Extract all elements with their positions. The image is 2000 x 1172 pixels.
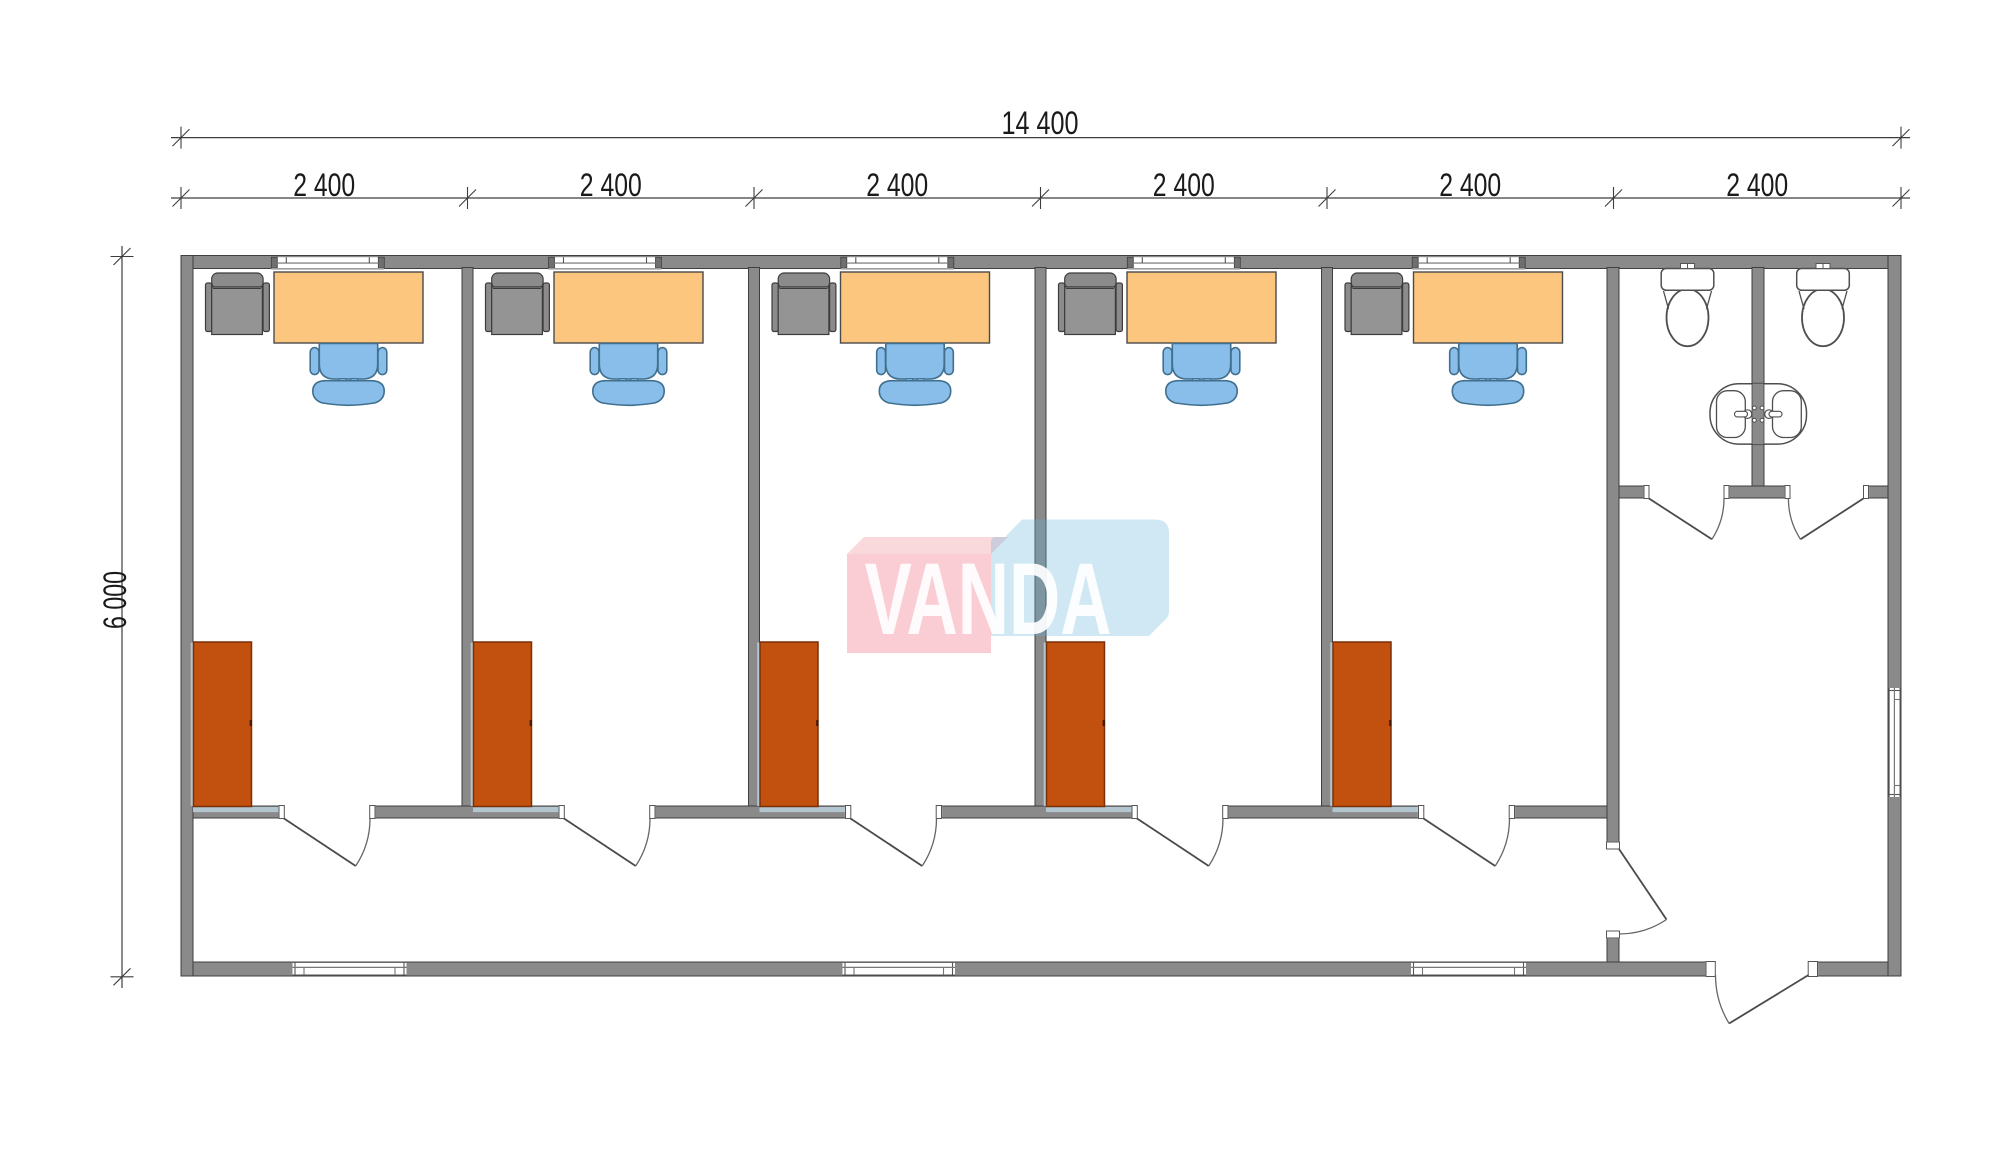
svg-text:2 400: 2 400 <box>1153 167 1215 203</box>
svg-text:14 400: 14 400 <box>1002 105 1079 141</box>
svg-text:2 400: 2 400 <box>866 167 928 203</box>
svg-text:VANDA: VANDA <box>865 542 1112 656</box>
svg-text:2 400: 2 400 <box>1439 167 1501 203</box>
svg-text:6 000: 6 000 <box>97 571 133 629</box>
svg-text:2 400: 2 400 <box>580 167 642 203</box>
svg-text:2 400: 2 400 <box>293 167 355 203</box>
svg-text:2 400: 2 400 <box>1726 167 1788 203</box>
